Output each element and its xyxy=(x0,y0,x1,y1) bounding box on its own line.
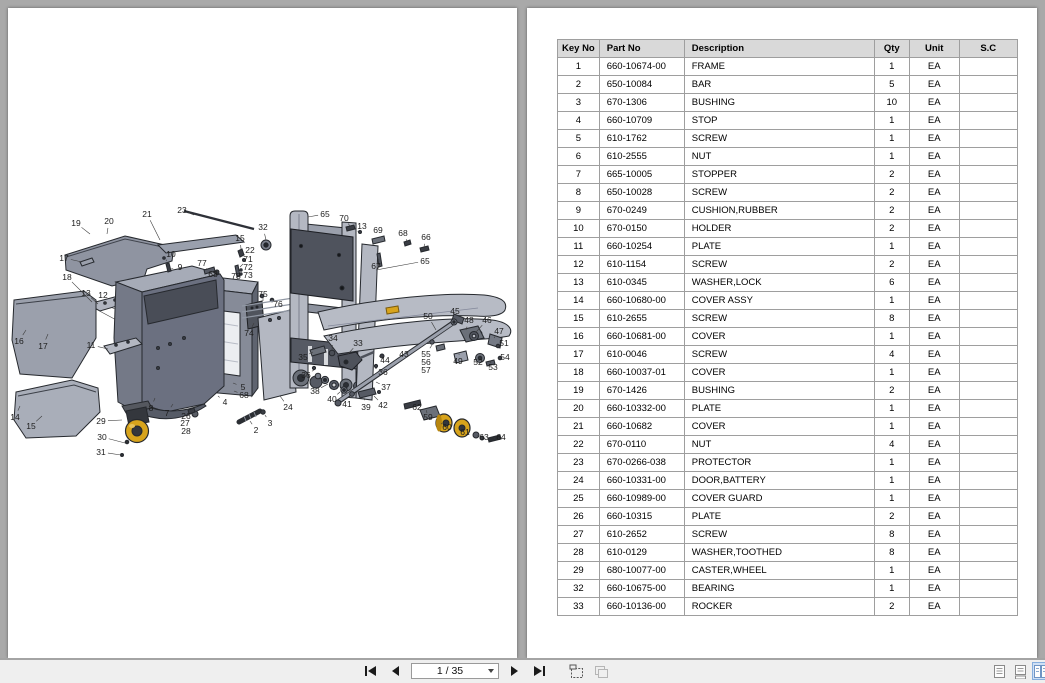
snapshot-icon xyxy=(569,664,585,679)
table-cell: 1 xyxy=(874,112,909,130)
callout-label: 15 xyxy=(26,421,36,431)
table-cell: 1 xyxy=(874,490,909,508)
table-cell: DOOR,BATTERY xyxy=(684,472,874,490)
table-cell: EA xyxy=(909,148,959,166)
callout-label: 76 xyxy=(273,299,283,309)
table-cell: 25 xyxy=(558,490,600,508)
table-row: 15610-2655SCREW8EA xyxy=(558,310,1018,328)
table-cell: SCREW xyxy=(684,130,874,148)
table-cell xyxy=(959,220,1017,238)
table-cell: EA xyxy=(909,184,959,202)
table-cell xyxy=(959,454,1017,472)
table-row: 6610-2555NUT1EA xyxy=(558,148,1018,166)
table-cell: BEARING xyxy=(684,580,874,598)
table-cell: EA xyxy=(909,418,959,436)
callout-leader xyxy=(265,234,266,240)
table-row: 33660-10136-00ROCKER2EA xyxy=(558,598,1018,616)
table-row: 32660-10675-00BEARING1EA xyxy=(558,580,1018,598)
table-cell: 610-1154 xyxy=(599,256,684,274)
table-cell: EA xyxy=(909,166,959,184)
table-cell xyxy=(959,202,1017,220)
table-cell: EA xyxy=(909,436,959,454)
last-page-button[interactable] xyxy=(531,663,547,679)
table-cell: 11 xyxy=(558,238,600,256)
callout-label: 70 xyxy=(339,213,349,223)
table-cell: EA xyxy=(909,292,959,310)
table-cell: PLATE xyxy=(684,400,874,418)
table-cell: 13 xyxy=(558,274,600,292)
callout-label: 15 xyxy=(235,233,245,243)
callout-label: 62 xyxy=(412,402,422,412)
table-cell: 16 xyxy=(558,328,600,346)
table-cell xyxy=(959,382,1017,400)
callout-label: 12 xyxy=(98,290,108,300)
caster-wheel-part xyxy=(121,401,153,457)
callout-label: 13 xyxy=(81,288,91,298)
table-row: 3670-1306BUSHING10EA xyxy=(558,94,1018,112)
table-cell xyxy=(959,238,1017,256)
table-cell: 1 xyxy=(874,58,909,76)
table-row: 20660-10332-00PLATE1EA xyxy=(558,400,1018,418)
callout-label: 61 xyxy=(460,427,470,437)
table-row: 10670-0150HOLDER2EA xyxy=(558,220,1018,238)
callout-label: 40 xyxy=(327,394,337,404)
callout-label: 47 xyxy=(494,326,504,336)
page-number-value[interactable]: 1 / 35 xyxy=(412,665,488,677)
table-cell xyxy=(959,346,1017,364)
table-cell: 6 xyxy=(558,148,600,166)
table-cell xyxy=(959,112,1017,130)
callout-label: 41 xyxy=(342,399,352,409)
table-cell: SCREW xyxy=(684,526,874,544)
table-cell: HOLDER xyxy=(684,220,874,238)
table-cell: 660-10331-00 xyxy=(599,472,684,490)
rod-part xyxy=(184,211,254,229)
table-cell: 670-0266-038 xyxy=(599,454,684,472)
table-cell xyxy=(959,94,1017,112)
table-cell: 12 xyxy=(558,256,600,274)
table-cell: COVER ASSY xyxy=(684,292,874,310)
table-cell: 18 xyxy=(558,364,600,382)
callout-label: 63 xyxy=(479,432,489,442)
left-page: 1920212315227172737810977681718131211161… xyxy=(8,8,517,658)
callout-label: 53 xyxy=(488,362,498,372)
table-cell: EA xyxy=(909,58,959,76)
bottom-toolbar: 1 / 35 xyxy=(0,658,1045,683)
table-cell: 670-0150 xyxy=(599,220,684,238)
callout-label: 10 xyxy=(166,249,176,259)
callout-leader xyxy=(337,392,340,394)
callout-label: 78 xyxy=(231,271,241,281)
table-cell xyxy=(959,76,1017,94)
previous-page-icon xyxy=(389,665,401,677)
callout-label: 48 xyxy=(464,315,474,325)
table-row: 24660-10331-00DOOR,BATTERY1EA xyxy=(558,472,1018,490)
callout-label: 50 xyxy=(423,311,433,321)
table-cell: 20 xyxy=(558,400,600,418)
table-cell: 24 xyxy=(558,472,600,490)
table-cell xyxy=(959,526,1017,544)
callout-leader xyxy=(321,384,328,388)
callout-label: 13 xyxy=(357,221,367,231)
table-cell: 660-10682 xyxy=(599,418,684,436)
callout-leader xyxy=(108,453,121,455)
table-cell: EA xyxy=(909,112,959,130)
diagram-shapes xyxy=(12,211,511,457)
table-cell: 670-1306 xyxy=(599,94,684,112)
chevron-down-icon[interactable] xyxy=(488,669,494,673)
table-cell xyxy=(959,58,1017,76)
table-cell: 2 xyxy=(874,508,909,526)
table-cell: 1 xyxy=(874,364,909,382)
callout-label: 35 xyxy=(298,352,308,362)
table-cell: 1 xyxy=(874,292,909,310)
table-cell: EA xyxy=(909,346,959,364)
callout-label: 23 xyxy=(177,205,187,215)
callout-label: 54 xyxy=(500,352,510,362)
table-row: 25660-10989-00COVER GUARD1EA xyxy=(558,490,1018,508)
exploded-diagram: 1920212315227172737810977681718131211161… xyxy=(8,8,517,658)
table-row: 19670-1426BUSHING2EA xyxy=(558,382,1018,400)
callout-leader xyxy=(150,220,160,240)
table-cell xyxy=(959,544,1017,562)
table-cell: 19 xyxy=(558,382,600,400)
callout-label: 19 xyxy=(71,218,81,228)
table-row: 12610-1154SCREW2EA xyxy=(558,256,1018,274)
callout-leader xyxy=(250,421,252,424)
table-cell: COVER xyxy=(684,328,874,346)
table-cell: 1 xyxy=(874,400,909,418)
callout-label: 8 xyxy=(149,403,154,413)
callout-label: 64 xyxy=(496,432,506,442)
table-cell: EA xyxy=(909,310,959,328)
table-cell: 650-10084 xyxy=(599,76,684,94)
page-number-field[interactable]: 1 / 35 xyxy=(411,663,499,679)
table-row: 7665-10005STOPPER2EA xyxy=(558,166,1018,184)
table-cell: EA xyxy=(909,202,959,220)
table-cell: COVER GUARD xyxy=(684,490,874,508)
table-cell: 7 xyxy=(558,166,600,184)
table-cell: 28 xyxy=(558,544,600,562)
previous-page-button[interactable] xyxy=(387,663,403,679)
table-cell xyxy=(959,166,1017,184)
table-cell: 4 xyxy=(558,112,600,130)
parts-table-header-row: Key NoPart NoDescriptionQtyUnitS.C xyxy=(558,40,1018,58)
callout-label: 36 xyxy=(378,367,388,377)
table-cell: EA xyxy=(909,220,959,238)
callout-leader xyxy=(375,368,377,369)
table-cell: 15 xyxy=(558,310,600,328)
callout-leader xyxy=(82,227,90,234)
table-cell: 1 xyxy=(874,472,909,490)
table-cell: SCREW xyxy=(684,346,874,364)
table-cell: NUT xyxy=(684,436,874,454)
callout-label: 37 xyxy=(381,382,391,392)
table-cell: 2 xyxy=(874,202,909,220)
callout-label: 68 xyxy=(208,269,218,279)
callout-label: 21 xyxy=(142,209,152,219)
callout-label: 32 xyxy=(258,222,268,232)
table-cell: BUSHING xyxy=(684,382,874,400)
table-cell: 4 xyxy=(874,346,909,364)
callout-label: 36 xyxy=(301,370,311,380)
callout-leader xyxy=(107,228,108,234)
facing-page-view-icon xyxy=(1034,664,1045,679)
table-cell: 660-10709 xyxy=(599,112,684,130)
side-cover-part xyxy=(12,291,100,438)
table-cell: SCREW xyxy=(684,256,874,274)
table-cell xyxy=(959,508,1017,526)
table-cell: EA xyxy=(909,76,959,94)
facing-page-view-button[interactable] xyxy=(1032,662,1045,680)
table-cell: 17 xyxy=(558,346,600,364)
table-cell: 610-2555 xyxy=(599,148,684,166)
table-cell: SCREW xyxy=(684,310,874,328)
table-cell: 10 xyxy=(558,220,600,238)
table-cell xyxy=(959,148,1017,166)
snapshot-button[interactable] xyxy=(569,663,585,679)
callout-leader xyxy=(108,420,122,421)
callout-label: 73 xyxy=(243,270,253,280)
callout-label: 75 xyxy=(258,289,268,299)
column-header: Description xyxy=(684,40,874,58)
column-header: Key No xyxy=(558,40,600,58)
continuous-view-icon xyxy=(1014,664,1027,679)
table-cell: 1 xyxy=(874,130,909,148)
table-cell: 2 xyxy=(874,184,909,202)
table-cell xyxy=(959,328,1017,346)
table-cell: EA xyxy=(909,364,959,382)
page-navigation: 1 / 35 xyxy=(363,663,609,679)
table-cell: EA xyxy=(909,238,959,256)
table-cell: EA xyxy=(909,130,959,148)
single-page-view-button[interactable] xyxy=(990,662,1008,680)
table-row: 11660-10254PLATE1EA xyxy=(558,238,1018,256)
table-row: 5610-1762SCREW1EA xyxy=(558,130,1018,148)
table-cell: 680-10077-00 xyxy=(599,562,684,580)
last-page-icon xyxy=(532,665,546,677)
table-cell: 8 xyxy=(874,310,909,328)
table-cell: EA xyxy=(909,490,959,508)
table-cell: 660-10989-00 xyxy=(599,490,684,508)
column-header: S.C xyxy=(959,40,1017,58)
table-cell xyxy=(959,310,1017,328)
table-cell: 27 xyxy=(558,526,600,544)
table-cell: 2 xyxy=(874,598,909,616)
callout-label: 66 xyxy=(421,232,431,242)
callout-label: 28 xyxy=(181,426,191,436)
table-row: 29680-10077-00CASTER,WHEEL1EA xyxy=(558,562,1018,580)
callout-label: 45 xyxy=(450,306,460,316)
callout-leader xyxy=(312,370,314,371)
table-cell: 610-0129 xyxy=(599,544,684,562)
callout-label: 2 xyxy=(254,425,259,435)
callout-label: 57 xyxy=(421,365,431,375)
callout-label: 52 xyxy=(473,357,483,367)
callout-label: 68 xyxy=(398,228,408,238)
table-cell: 610-2652 xyxy=(599,526,684,544)
callout-label: 74 xyxy=(244,328,254,338)
callout-label: 68 xyxy=(239,390,249,400)
table-cell: EA xyxy=(909,382,959,400)
callout-label: 7 xyxy=(165,408,170,418)
table-cell: 670-1426 xyxy=(599,382,684,400)
callout-leader xyxy=(218,396,220,397)
table-cell: EA xyxy=(909,526,959,544)
table-cell: 660-10254 xyxy=(599,238,684,256)
callout-label: 17 xyxy=(38,341,48,351)
next-page-icon xyxy=(509,665,521,677)
table-cell: FRAME xyxy=(684,58,874,76)
table-cell: BAR xyxy=(684,76,874,94)
table-row: 26660-10315PLATE2EA xyxy=(558,508,1018,526)
table-cell: 3 xyxy=(558,94,600,112)
table-row: 2650-10084BAR5EA xyxy=(558,76,1018,94)
table-row: 21660-10682COVER1EA xyxy=(558,418,1018,436)
clipboard-copy-button[interactable] xyxy=(593,663,609,679)
callout-label: 51 xyxy=(499,338,509,348)
right-page: Key NoPart NoDescriptionQtyUnitS.C 1660-… xyxy=(527,8,1037,658)
first-page-button[interactable] xyxy=(363,663,379,679)
callout-label: 24 xyxy=(283,402,293,412)
spring-part xyxy=(239,410,265,422)
table-cell: STOP xyxy=(684,112,874,130)
callout-label: 9 xyxy=(178,262,183,272)
clipboard-copy-icon xyxy=(593,664,609,679)
callout-label: 49 xyxy=(453,356,463,366)
table-cell xyxy=(959,256,1017,274)
table-cell: COVER xyxy=(684,418,874,436)
callout-label: 29 xyxy=(96,416,106,426)
callout-label: 33 xyxy=(353,338,363,348)
table-cell: 610-0345 xyxy=(599,274,684,292)
callout-leader xyxy=(376,382,380,384)
table-cell xyxy=(959,292,1017,310)
callout-label: 30 xyxy=(97,432,107,442)
table-row: 14660-10680-00COVER ASSY1EA xyxy=(558,292,1018,310)
table-cell xyxy=(959,436,1017,454)
table-cell: PLATE xyxy=(684,508,874,526)
pages-area: 1920212315227172737810977681718131211161… xyxy=(0,0,1045,658)
table-cell: 22 xyxy=(558,436,600,454)
table-cell: EA xyxy=(909,328,959,346)
table-cell: 660-10136-00 xyxy=(599,598,684,616)
table-cell: 26 xyxy=(558,508,600,526)
table-cell: EA xyxy=(909,598,959,616)
table-cell: 4 xyxy=(874,436,909,454)
table-cell: 5 xyxy=(558,130,600,148)
callout-label: 69 xyxy=(373,225,383,235)
first-page-icon xyxy=(364,665,378,677)
table-cell: WASHER,TOOTHED xyxy=(684,544,874,562)
table-cell xyxy=(959,400,1017,418)
table-cell: 23 xyxy=(558,454,600,472)
table-cell xyxy=(959,184,1017,202)
callout-leader xyxy=(206,268,207,269)
callout-label: 65 xyxy=(320,209,330,219)
table-cell: 2 xyxy=(558,76,600,94)
callout-label: 16 xyxy=(14,336,24,346)
table-cell: SCREW xyxy=(684,184,874,202)
table-cell: BUSHING xyxy=(684,94,874,112)
table-cell: CASTER,WHEEL xyxy=(684,562,874,580)
table-cell: 10 xyxy=(874,94,909,112)
table-row: 23670-0266-038PROTECTOR1EA xyxy=(558,454,1018,472)
callout-label: 4 xyxy=(223,397,228,407)
column-header: Part No xyxy=(599,40,684,58)
table-cell: 1 xyxy=(874,148,909,166)
table-cell xyxy=(959,364,1017,382)
table-cell: 32 xyxy=(558,580,600,598)
parts-table-body: 1660-10674-00FRAME1EA2650-10084BAR5EA367… xyxy=(558,58,1018,616)
table-cell xyxy=(959,580,1017,598)
table-cell: 660-10332-00 xyxy=(599,400,684,418)
table-cell xyxy=(959,562,1017,580)
table-cell: WASHER,LOCK xyxy=(684,274,874,292)
table-cell: CUSHION,RUBBER xyxy=(684,202,874,220)
page-view-buttons xyxy=(990,662,1045,680)
table-cell: EA xyxy=(909,544,959,562)
table-cell: EA xyxy=(909,274,959,292)
table-cell: 5 xyxy=(874,76,909,94)
callout-label: 44 xyxy=(380,355,390,365)
table-cell: COVER xyxy=(684,364,874,382)
callout-label: 65 xyxy=(420,256,430,266)
table-row: 27610-2652SCREW8EA xyxy=(558,526,1018,544)
table-cell: 670-0249 xyxy=(599,202,684,220)
table-cell: 8 xyxy=(874,526,909,544)
callout-leader xyxy=(430,345,432,348)
table-cell: EA xyxy=(909,472,959,490)
table-cell: 2 xyxy=(874,256,909,274)
table-cell xyxy=(959,598,1017,616)
table-cell: 2 xyxy=(874,166,909,184)
callout-label: 34 xyxy=(328,333,338,343)
table-cell: 670-0110 xyxy=(599,436,684,454)
table-cell: 21 xyxy=(558,418,600,436)
column-header: Qty xyxy=(874,40,909,58)
table-row: 13610-0345WASHER,LOCK6EA xyxy=(558,274,1018,292)
table-cell: 610-2655 xyxy=(599,310,684,328)
callout-label: 3 xyxy=(268,418,273,428)
table-cell: EA xyxy=(909,454,959,472)
table-cell: 2 xyxy=(874,382,909,400)
next-page-button[interactable] xyxy=(507,663,523,679)
table-cell: 660-10681-00 xyxy=(599,328,684,346)
table-cell xyxy=(959,418,1017,436)
table-cell: 660-10675-00 xyxy=(599,580,684,598)
single-page-view-icon xyxy=(993,664,1006,679)
callout-leader xyxy=(109,439,125,443)
callout-label: 43 xyxy=(399,349,409,359)
table-row: 18660-10037-01COVER1EA xyxy=(558,364,1018,382)
table-cell: EA xyxy=(909,256,959,274)
callout-label: 42 xyxy=(378,400,388,410)
table-cell: 660-10674-00 xyxy=(599,58,684,76)
callout-label: 46 xyxy=(482,315,492,325)
table-cell: 660-10315 xyxy=(599,508,684,526)
table-cell: 665-10005 xyxy=(599,166,684,184)
table-cell: PLATE xyxy=(684,238,874,256)
table-cell: 1 xyxy=(874,328,909,346)
column-header: Unit xyxy=(909,40,959,58)
table-cell: STOPPER xyxy=(684,166,874,184)
table-cell: EA xyxy=(909,400,959,418)
callout-label: 59 xyxy=(423,412,433,422)
table-row: 4660-10709STOP1EA xyxy=(558,112,1018,130)
continuous-view-button[interactable] xyxy=(1011,662,1029,680)
table-cell xyxy=(959,274,1017,292)
